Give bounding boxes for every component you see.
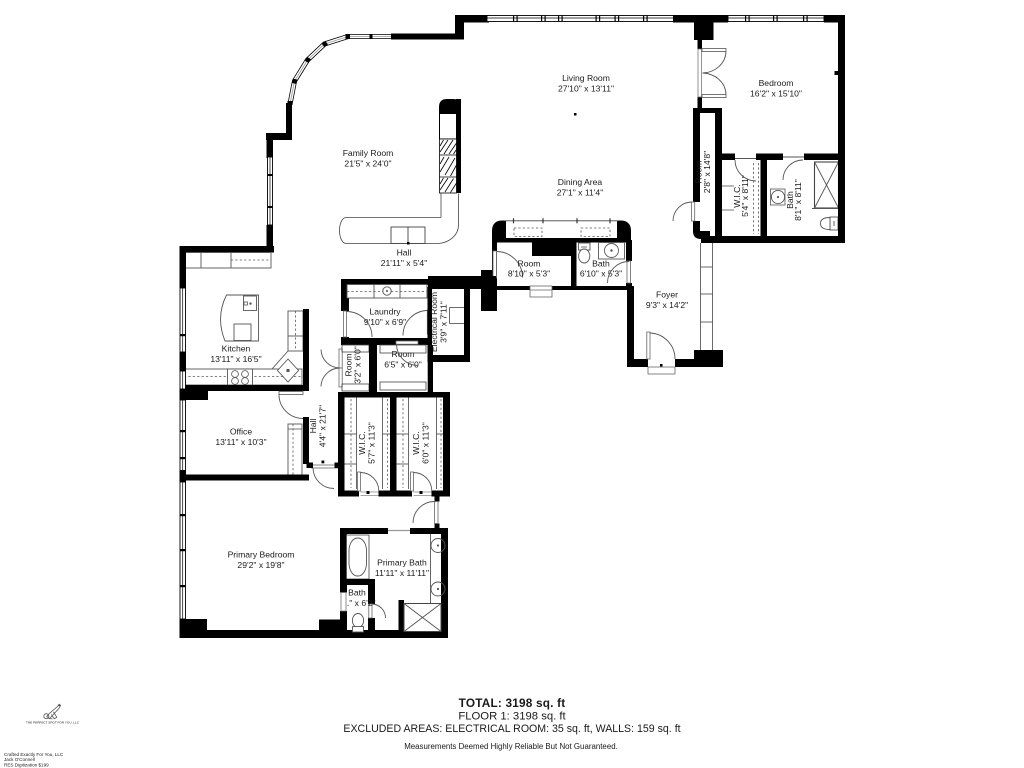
svg-text:21'5" x 24'0": 21'5" x 24'0": [344, 159, 391, 169]
svg-text:5'7" x 11'3": 5'7" x 11'3": [367, 422, 377, 464]
svg-text:8'1" x 8'11": 8'1" x 8'11": [793, 179, 803, 221]
svg-text:Bath: Bath: [348, 588, 366, 598]
svg-text:Foyer: Foyer: [656, 290, 678, 300]
svg-text:2'8" x 14'8": 2'8" x 14'8": [702, 151, 712, 193]
svg-text:Bath: Bath: [592, 259, 610, 269]
svg-text:5'4" x 8'11": 5'4" x 8'11": [740, 175, 750, 217]
svg-text:FLOOR 1: 3198 sq. ft: FLOOR 1: 3198 sq. ft: [458, 711, 566, 723]
svg-text:Laundry: Laundry: [369, 307, 401, 317]
svg-text:9'3" x 14'2": 9'3" x 14'2": [646, 300, 688, 310]
svg-text:6'10" x 5'3": 6'10" x 5'3": [580, 269, 622, 279]
svg-text:Dining Area: Dining Area: [558, 177, 603, 187]
svg-text:W.I.C.: W.I.C.: [411, 431, 421, 454]
svg-text:3'9" x 7'11": 3'9" x 7'11": [439, 301, 449, 343]
svg-text:6'0" x 11'3": 6'0" x 11'3": [421, 422, 431, 464]
svg-text:EXCLUDED AREAS: ELECTRICAL ROO: EXCLUDED AREAS: ELECTRICAL ROOM: 35 sq. …: [343, 723, 680, 735]
svg-text:Bedroom: Bedroom: [759, 78, 794, 88]
svg-text:TOTAL: 3198 sq. ft: TOTAL: 3198 sq. ft: [459, 696, 566, 710]
svg-text:4'4" x 21'7": 4'4" x 21'7": [318, 405, 328, 447]
svg-text:Primary Bath: Primary Bath: [377, 558, 427, 568]
svg-text:16'2" x 15'10": 16'2" x 15'10": [750, 89, 802, 99]
svg-text:RES Digitization $199: RES Digitization $199: [4, 763, 49, 768]
svg-text:Hall: Hall: [397, 248, 412, 258]
svg-text:21'11" x 5'4": 21'11" x 5'4": [381, 258, 428, 268]
svg-text:Electrical Room: Electrical Room: [429, 292, 439, 352]
svg-text:Hall: Hall: [308, 419, 318, 434]
svg-text:W.I.C.: W.I.C.: [357, 431, 367, 454]
svg-text:27'10" x 13'11": 27'10" x 13'11": [558, 84, 614, 94]
svg-text:Family Room: Family Room: [343, 148, 394, 158]
svg-text:Room: Room: [518, 259, 541, 269]
svg-text:27'1" x 11'4": 27'1" x 11'4": [557, 188, 604, 198]
svg-text:Room: Room: [392, 349, 415, 359]
svg-text:Measurements Deemed Highly Rel: Measurements Deemed Highly Reliable But …: [404, 742, 618, 751]
svg-text:3'2" x 6'0": 3'2" x 6'0": [353, 346, 363, 384]
svg-text:Living Room: Living Room: [562, 73, 610, 83]
svg-text:13'11" x 16'5": 13'11" x 16'5": [210, 354, 261, 364]
svg-text:THE PERFECT SPOT FOR YOU, LLC: THE PERFECT SPOT FOR YOU, LLC: [26, 721, 80, 725]
svg-text:1" x 6'2": 1" x 6'2": [344, 598, 375, 608]
svg-text:Office: Office: [230, 427, 253, 437]
svg-text:Primary Bedroom: Primary Bedroom: [228, 550, 295, 560]
svg-text:8'10" x 5'3": 8'10" x 5'3": [508, 269, 550, 279]
svg-text:11'11" x 11'11": 11'11" x 11'11": [375, 568, 429, 578]
svg-text:13'11" x 10'3": 13'11" x 10'3": [215, 437, 266, 447]
svg-text:6'5" x 6'0": 6'5" x 6'0": [384, 360, 422, 370]
svg-text:29'2" x 19'8": 29'2" x 19'8": [237, 560, 284, 570]
svg-text:9'10" x 6'9": 9'10" x 6'9": [364, 317, 406, 327]
svg-text:Jack O'Connell: Jack O'Connell: [4, 757, 35, 762]
svg-text:Kitchen: Kitchen: [222, 344, 251, 354]
